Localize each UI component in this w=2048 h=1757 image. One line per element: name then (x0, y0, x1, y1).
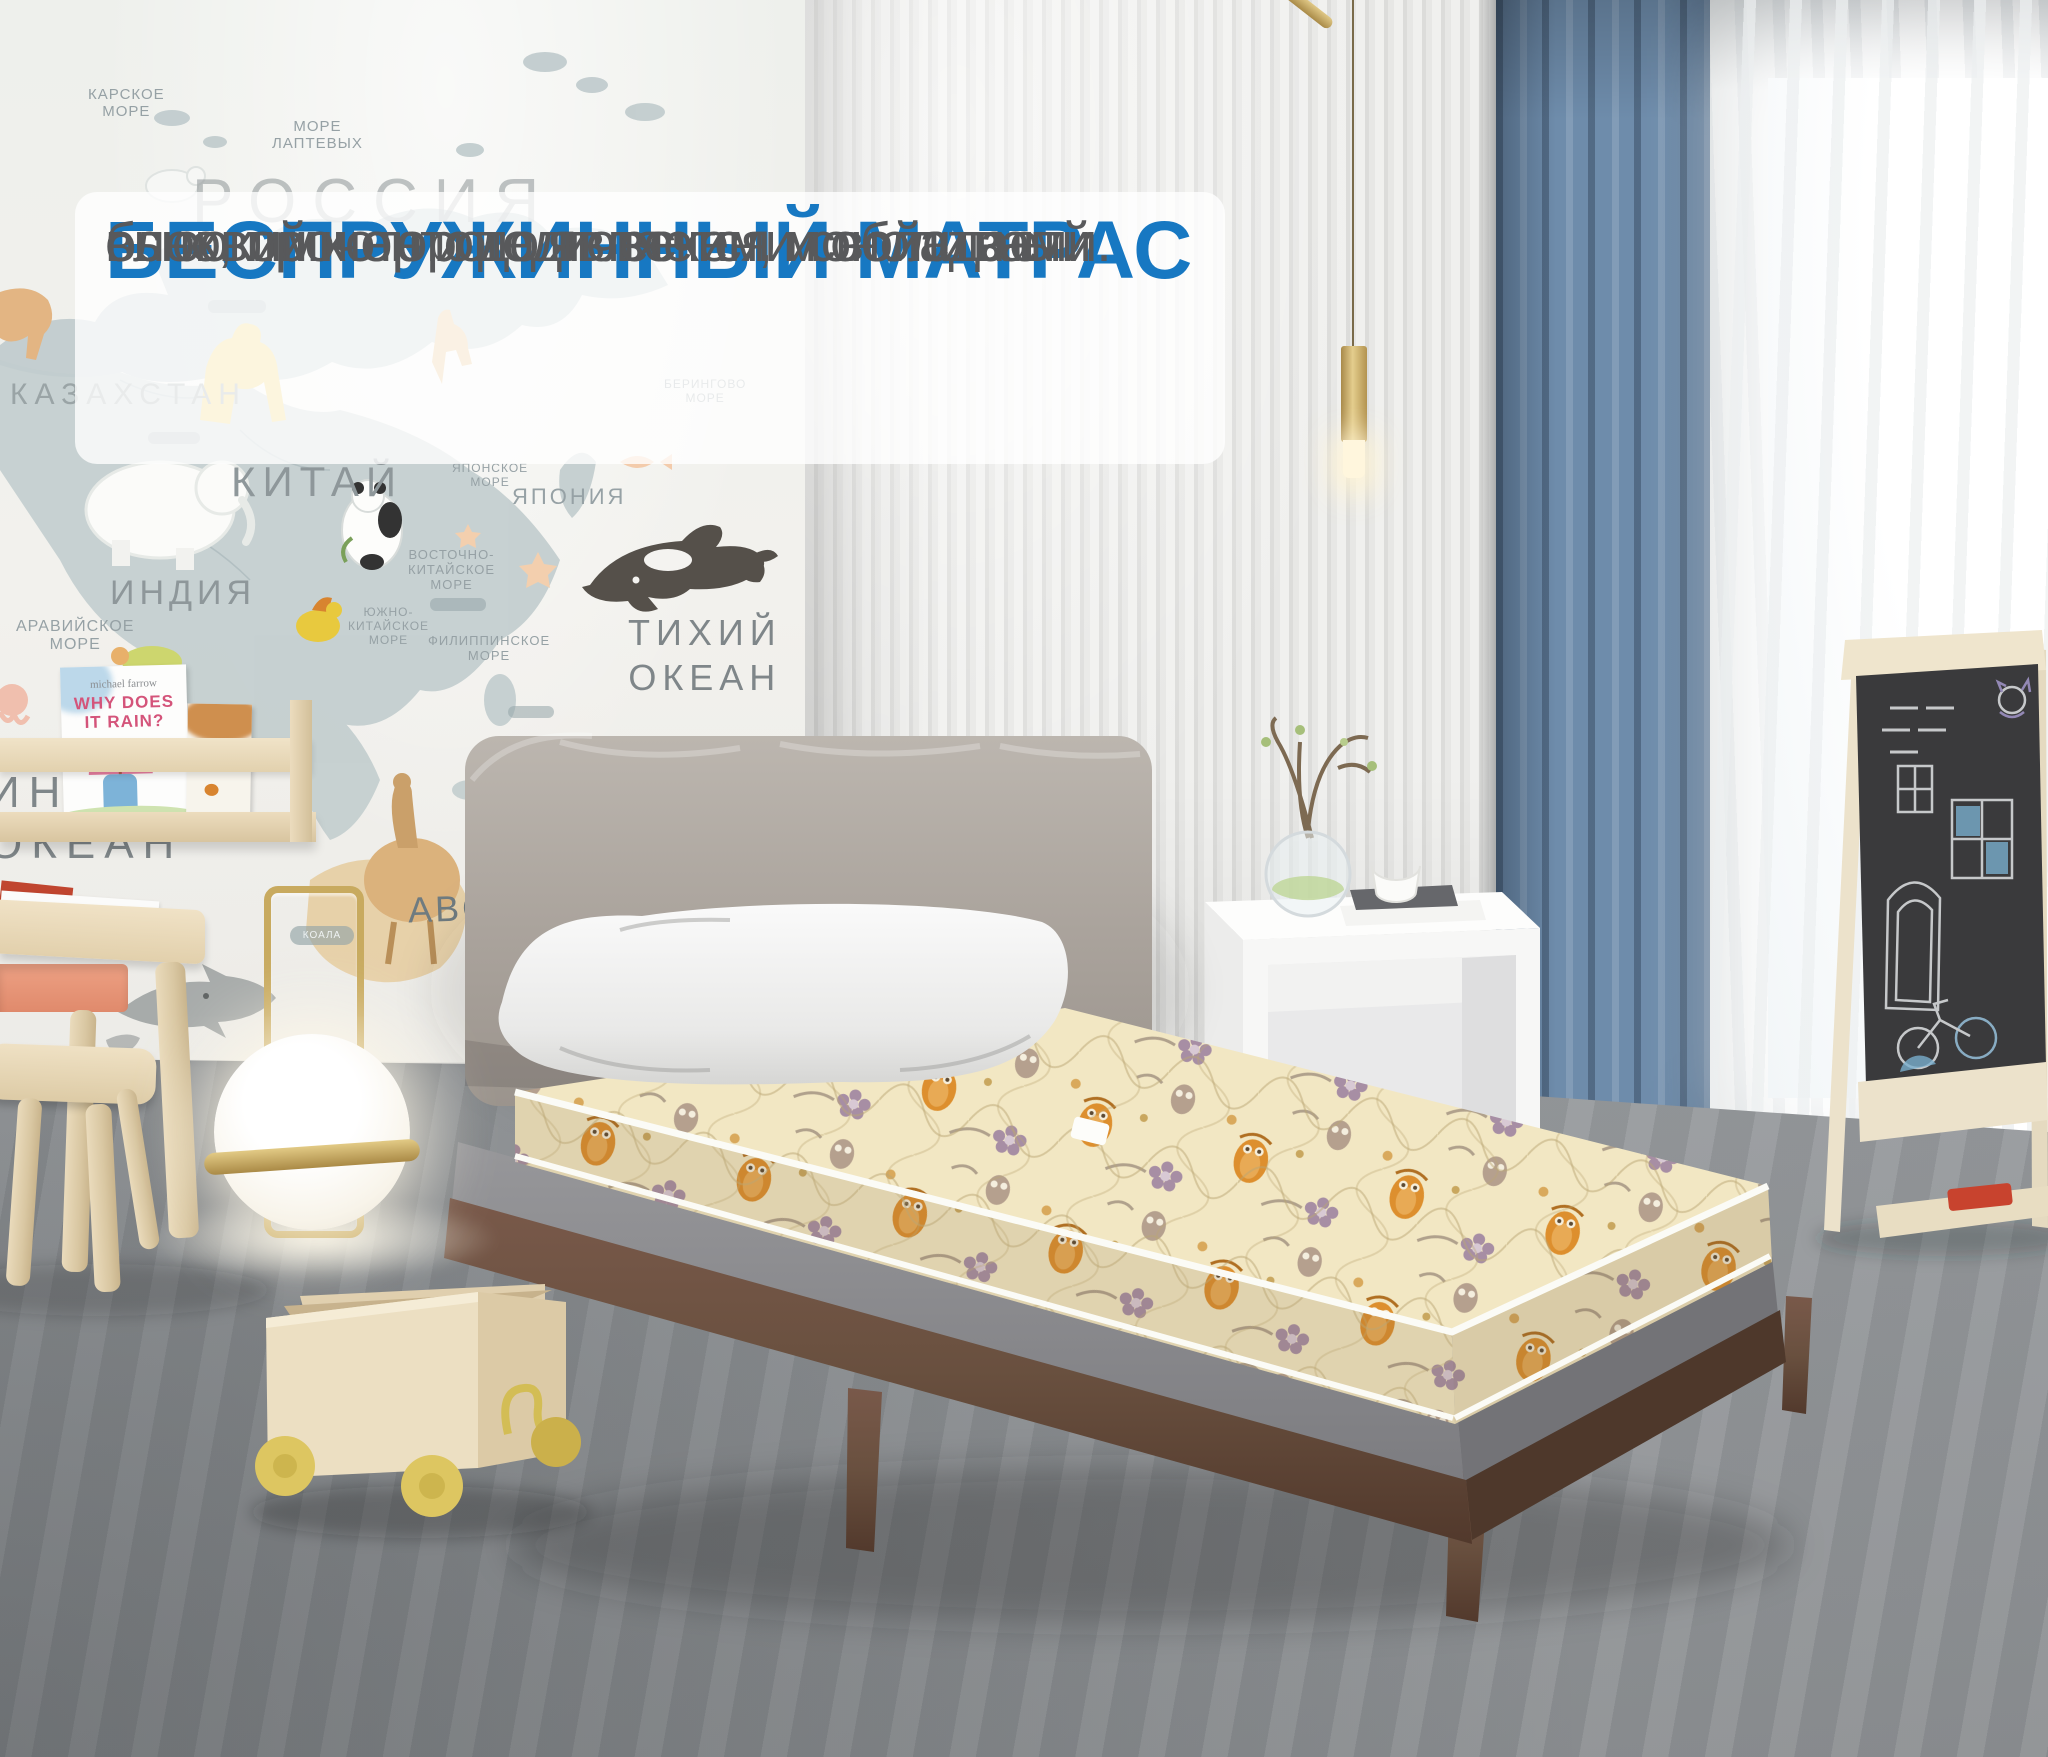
marketing-text-overlay: БЕСПРУЖИННЫЙ МАТРАС основой которого явл… (75, 192, 1225, 464)
product-photo-kids-bedroom: КАРСКОЕ МОРЕ МОРЕ ЛАПТЕВЫХ РОССИЯ КАЗАХС… (0, 0, 2048, 1757)
kids-table-drawer (0, 964, 128, 1012)
kids-table-top (0, 900, 205, 965)
butterfly-icon (204, 784, 218, 796)
pendant-wire (1352, 0, 1354, 348)
book-title: WHY DOES IT RAIN? (61, 692, 188, 733)
book-author: michael farrow (60, 676, 186, 691)
book2-tree-art (186, 703, 252, 742)
wall-shelf-endcap (290, 700, 312, 842)
pendant-brass-cylinder (1341, 346, 1367, 442)
bed-shadow (510, 1467, 1790, 1623)
vase-with-branches (1261, 718, 1377, 916)
overlay-body-line3: высокими ортопедическими свойствами. (105, 212, 1111, 273)
easel-chalkboard (1824, 630, 2048, 1238)
pendant-glowing-tip (1343, 440, 1365, 478)
floor-lamp-glowing-sphere (214, 1034, 410, 1230)
wall-shelf-rail (0, 738, 312, 772)
wall-shelf-board (0, 812, 316, 842)
toy-cart (255, 1284, 581, 1517)
